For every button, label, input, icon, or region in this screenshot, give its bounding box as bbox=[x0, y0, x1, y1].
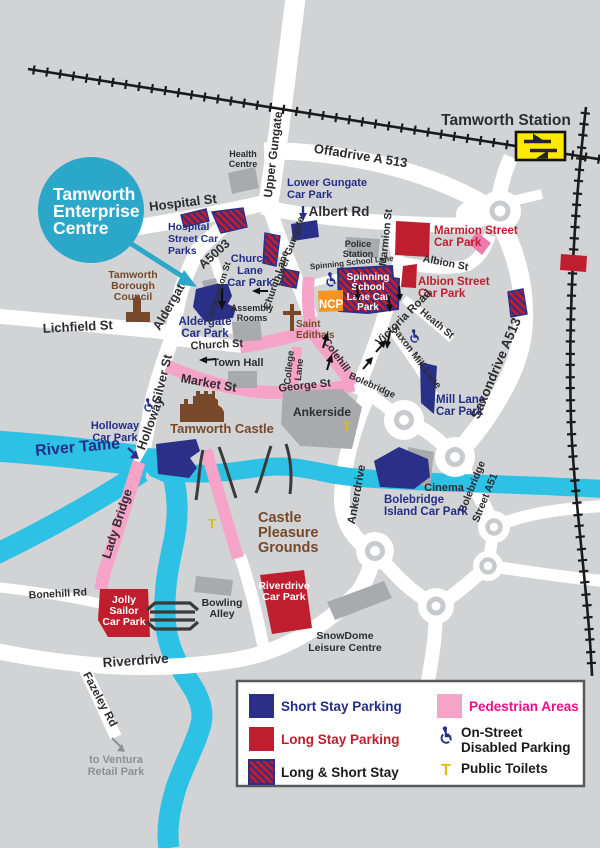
svg-text:Lane: Lane bbox=[293, 358, 306, 381]
svg-text:Parks: Parks bbox=[168, 245, 197, 257]
svg-text:Church: Church bbox=[231, 253, 270, 265]
svg-text:Public Toilets: Public Toilets bbox=[461, 761, 548, 776]
svg-text:Centre: Centre bbox=[229, 159, 258, 169]
svg-text:Island Car Park: Island Car Park bbox=[384, 506, 468, 518]
svg-text:NCP: NCP bbox=[319, 299, 344, 311]
svg-text:Retail Park: Retail Park bbox=[88, 766, 146, 778]
svg-text:Pedestrian Areas: Pedestrian Areas bbox=[469, 699, 579, 714]
svg-text:Long Stay Parking: Long Stay Parking bbox=[281, 732, 400, 747]
svg-text:Leisure Centre: Leisure Centre bbox=[308, 642, 382, 654]
svg-text:T: T bbox=[441, 762, 451, 779]
svg-text:Town Hall: Town Hall bbox=[212, 357, 263, 369]
svg-text:T: T bbox=[343, 419, 351, 434]
svg-text:Lane: Lane bbox=[237, 265, 263, 277]
svg-text:Tamworth Station: Tamworth Station bbox=[441, 112, 571, 129]
svg-text:Pleasure: Pleasure bbox=[258, 525, 318, 541]
svg-text:Holloway: Holloway bbox=[91, 420, 140, 432]
svg-text:Bolebridge: Bolebridge bbox=[384, 494, 444, 506]
svg-text:Centre: Centre bbox=[53, 218, 109, 238]
svg-text:Long & Short Stay: Long & Short Stay bbox=[281, 765, 399, 780]
svg-text:Health: Health bbox=[229, 149, 257, 159]
svg-text:Car Park: Car Park bbox=[287, 189, 333, 201]
svg-text:Car Park: Car Park bbox=[262, 591, 305, 603]
svg-text:Grounds: Grounds bbox=[258, 540, 318, 556]
svg-text:Street Car: Street Car bbox=[168, 233, 218, 245]
svg-text:Lower Gungate: Lower Gungate bbox=[287, 177, 367, 189]
svg-text:Hospital: Hospital bbox=[168, 221, 210, 233]
svg-text:SnowDome: SnowDome bbox=[316, 630, 373, 642]
svg-text:Assembly: Assembly bbox=[231, 303, 274, 313]
svg-text:Alley: Alley bbox=[209, 608, 234, 620]
svg-text:to Ventura: to Ventura bbox=[89, 754, 144, 766]
svg-text:T: T bbox=[208, 516, 216, 531]
svg-text:Castle: Castle bbox=[258, 510, 302, 526]
svg-text:Marmion Street: Marmion Street bbox=[434, 225, 518, 237]
svg-text:Council: Council bbox=[114, 291, 153, 303]
svg-text:On-Street: On-Street bbox=[461, 725, 523, 740]
svg-text:Short Stay Parking: Short Stay Parking bbox=[281, 699, 402, 714]
svg-text:Ankerside: Ankerside bbox=[293, 405, 351, 419]
svg-text:Albert Rd: Albert Rd bbox=[309, 204, 370, 219]
svg-text:Rooms: Rooms bbox=[237, 313, 268, 323]
svg-text:Disabled Parking: Disabled Parking bbox=[461, 740, 571, 755]
svg-text:Car Park: Car Park bbox=[181, 328, 229, 340]
svg-text:Cinema: Cinema bbox=[424, 482, 465, 494]
svg-text:Car Park: Car Park bbox=[434, 237, 482, 249]
svg-text:Police: Police bbox=[345, 239, 372, 249]
svg-text:Saint: Saint bbox=[296, 319, 321, 330]
svg-text:Aldergate: Aldergate bbox=[178, 316, 231, 328]
svg-text:Car Park: Car Park bbox=[102, 616, 145, 628]
svg-text:Albion Street: Albion Street bbox=[418, 276, 490, 288]
svg-text:Tamworth Castle: Tamworth Castle bbox=[170, 421, 274, 436]
svg-text:Park: Park bbox=[357, 302, 379, 313]
svg-text:Car Park: Car Park bbox=[227, 277, 273, 289]
